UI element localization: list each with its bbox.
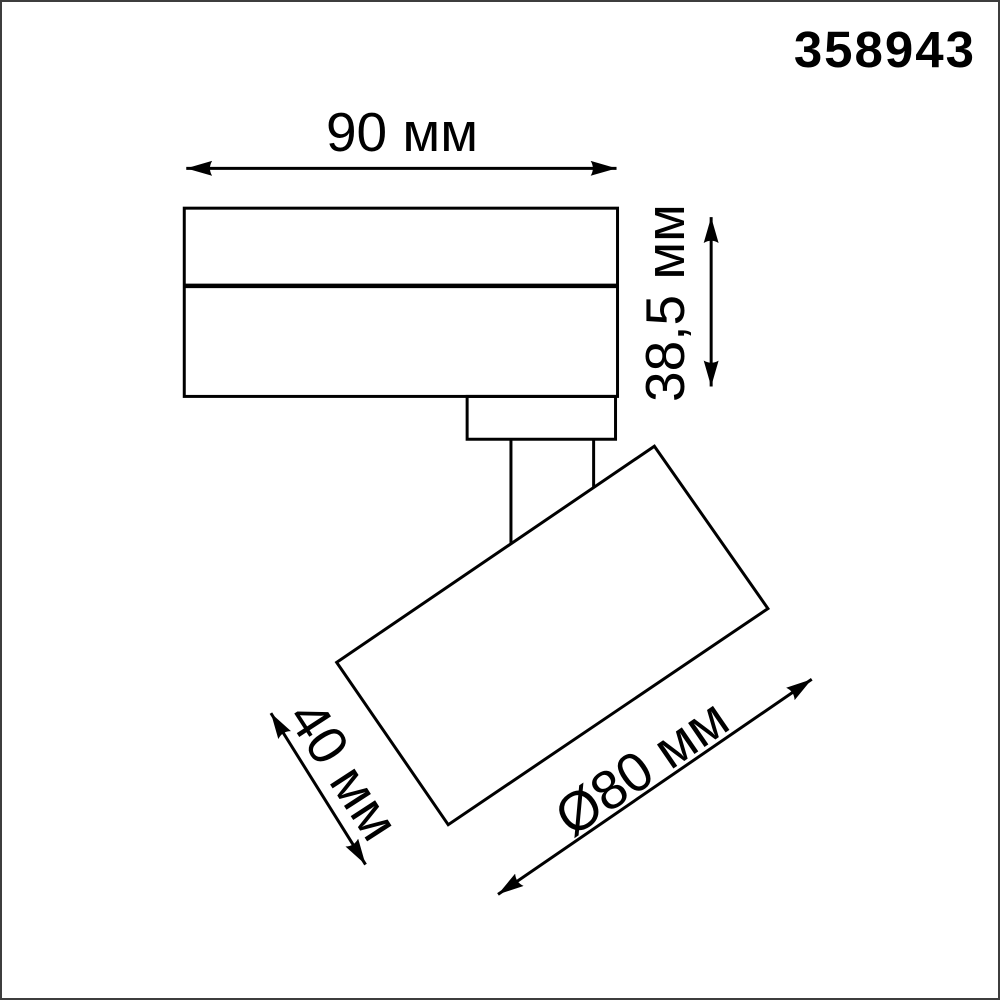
track-mount-body-outline bbox=[184, 208, 617, 396]
dim-label-body-width: 90 мм bbox=[326, 104, 478, 162]
lamp-head-outline bbox=[337, 446, 768, 824]
dim-label-body-height: 38,5 мм bbox=[637, 204, 695, 402]
dimension-drawing-canvas: 358943 90 мм 38,5 мм 40 мм Ø80 мм bbox=[0, 0, 1000, 1000]
technical-drawing-svg bbox=[2, 2, 998, 998]
product-code: 358943 bbox=[794, 24, 976, 75]
adapter-block-outline bbox=[467, 396, 615, 439]
